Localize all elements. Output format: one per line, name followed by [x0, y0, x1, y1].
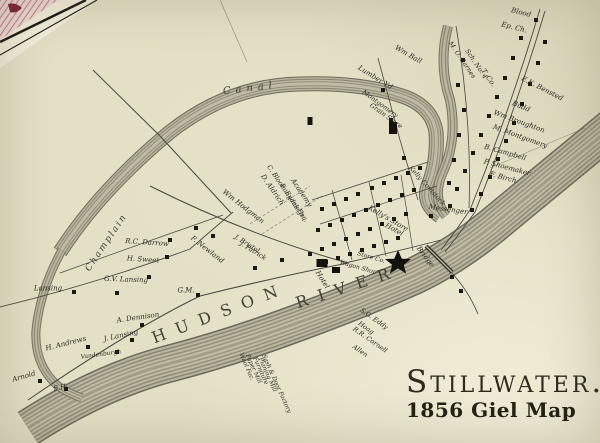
- title-block: Stillwater. 1856 Giel Map: [406, 366, 600, 422]
- map-caption: 1856 Giel Map: [406, 398, 600, 422]
- champlain-canal: [60, 84, 440, 252]
- southwest-creek: [36, 250, 82, 398]
- adjacent-sheet-corner: [0, 0, 97, 68]
- stillwater-map: BloodEp. Ch.Wm BallLumber YdMontgomeryGr…: [0, 0, 600, 443]
- map-title: Stillwater.: [406, 366, 600, 399]
